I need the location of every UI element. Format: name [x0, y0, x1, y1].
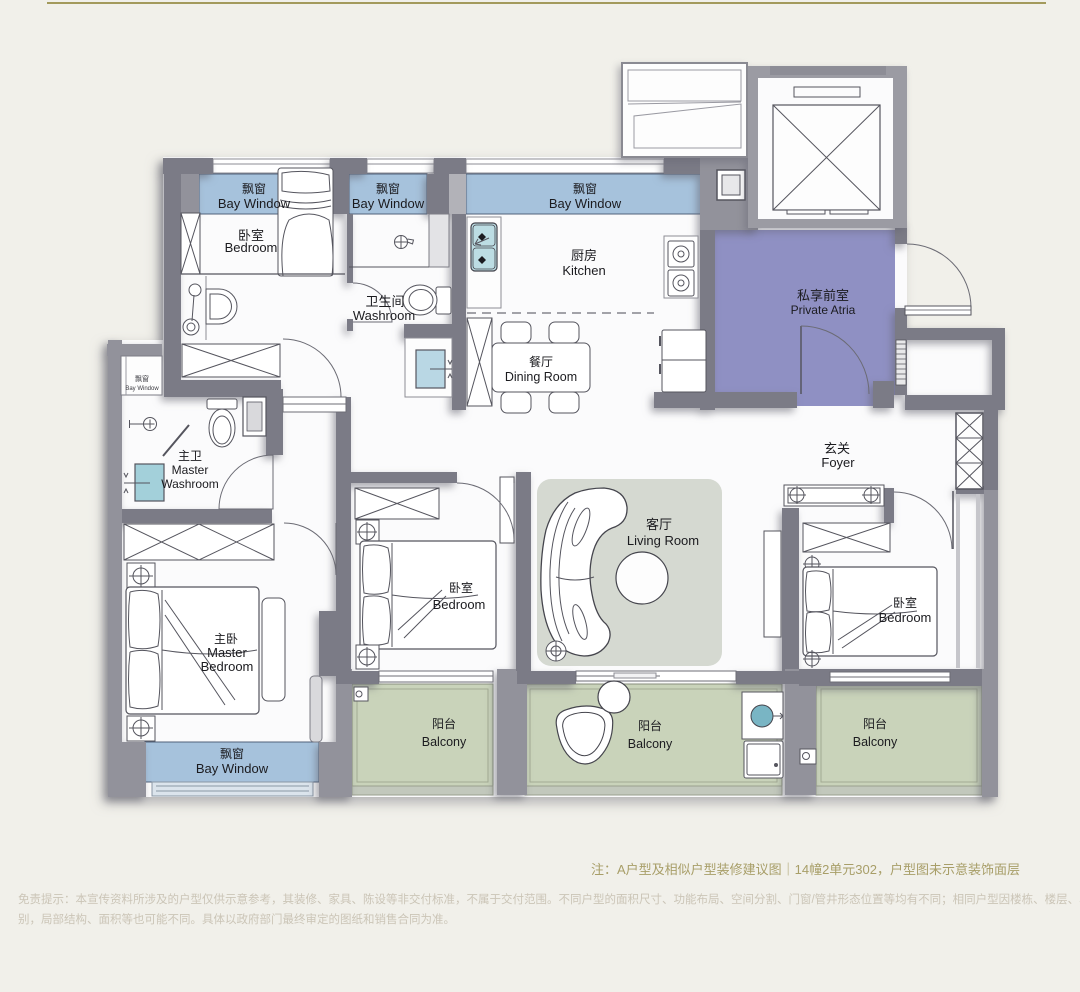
- svg-text:玄关: 玄关: [824, 441, 850, 456]
- svg-text:Bay Window: Bay Window: [196, 761, 269, 776]
- svg-text:阳台: 阳台: [638, 718, 662, 733]
- svg-text:Kitchen: Kitchen: [562, 263, 605, 278]
- svg-text:Bay Window: Bay Window: [218, 196, 291, 211]
- svg-text:卧室: 卧室: [893, 595, 917, 610]
- svg-text:Balcony: Balcony: [853, 735, 898, 749]
- svg-text:卧室: 卧室: [449, 580, 473, 595]
- svg-text:飘窗: 飘窗: [376, 182, 400, 196]
- svg-text:Master: Master: [172, 463, 209, 477]
- svg-text:免责提示：本宣传资料所涉及的户型仅供示意参考，其装修、家具、: 免责提示：本宣传资料所涉及的户型仅供示意参考，其装修、家具、陈设等非交付标准，不…: [18, 892, 1080, 906]
- svg-text:Foyer: Foyer: [821, 455, 855, 470]
- svg-text:飘窗: 飘窗: [135, 374, 149, 383]
- svg-text:Washroom: Washroom: [161, 477, 219, 491]
- svg-text:Living Room: Living Room: [627, 533, 699, 548]
- svg-text:私享前室: 私享前室: [797, 288, 849, 303]
- svg-text:Private Atria: Private Atria: [791, 303, 856, 317]
- svg-text:Bay Window: Bay Window: [549, 196, 622, 211]
- svg-text:飘窗: 飘窗: [242, 182, 266, 196]
- svg-text:客厅: 客厅: [646, 517, 672, 532]
- svg-text:Bedroom: Bedroom: [433, 597, 486, 612]
- svg-text:餐厅: 餐厅: [529, 354, 553, 369]
- svg-text:注：A户型及相似户型装修建议图｜14幢2单元302，户型图未: 注：A户型及相似户型装修建议图｜14幢2单元302，户型图未示意装饰面层: [591, 862, 1020, 877]
- svg-text:阳台: 阳台: [863, 716, 887, 731]
- svg-text:Bedroom: Bedroom: [879, 610, 932, 625]
- svg-text:Bay Window: Bay Window: [352, 196, 425, 211]
- svg-text:Balcony: Balcony: [422, 735, 467, 749]
- svg-text:Dining Room: Dining Room: [505, 370, 577, 384]
- svg-text:厨房: 厨房: [571, 248, 597, 263]
- svg-text:阳台: 阳台: [432, 716, 456, 731]
- svg-text:Balcony: Balcony: [628, 737, 673, 751]
- svg-text:Master: Master: [207, 645, 247, 660]
- svg-text:Washroom: Washroom: [353, 308, 415, 323]
- svg-text:飘窗: 飘窗: [220, 747, 244, 761]
- svg-text:Bay Window: Bay Window: [125, 386, 159, 392]
- svg-text:Bedroom: Bedroom: [201, 659, 254, 674]
- svg-text:别，局部结构、面积等也可能不同。具体以政府部门最终审定的图纸: 别，局部结构、面积等也可能不同。具体以政府部门最终审定的图纸和销售合同为准。: [18, 912, 455, 926]
- svg-text:飘窗: 飘窗: [573, 182, 597, 196]
- svg-text:主卫: 主卫: [178, 449, 202, 463]
- svg-text:主卧: 主卧: [214, 632, 238, 646]
- svg-text:Bedroom: Bedroom: [225, 240, 278, 255]
- svg-text:卫生间: 卫生间: [365, 294, 404, 309]
